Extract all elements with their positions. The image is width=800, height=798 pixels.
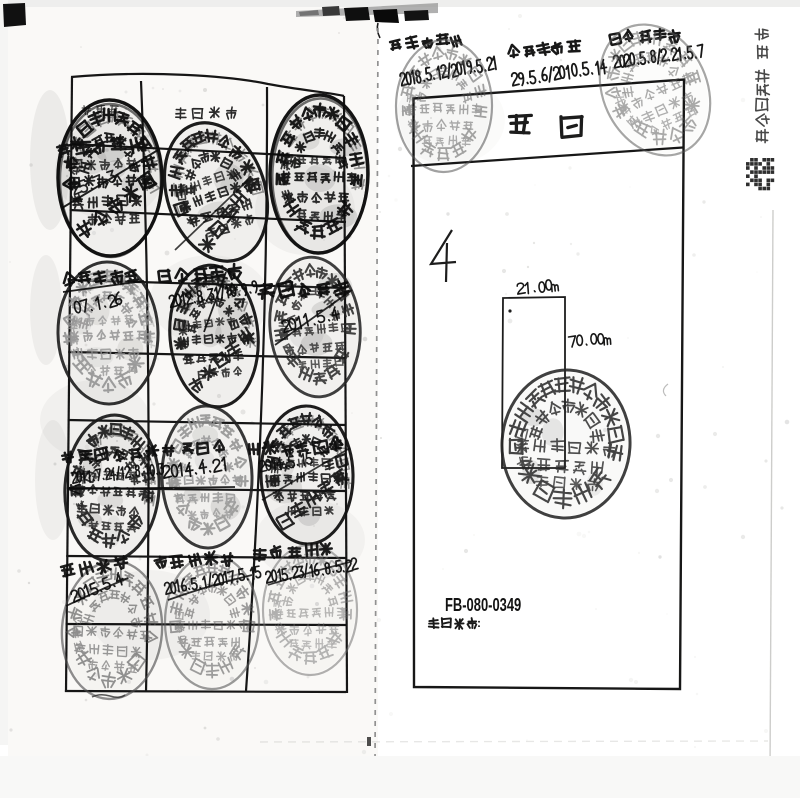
- svg-text:FB-080-0349: FB-080-0349: [445, 596, 521, 616]
- svg-text::: :: [477, 616, 481, 630]
